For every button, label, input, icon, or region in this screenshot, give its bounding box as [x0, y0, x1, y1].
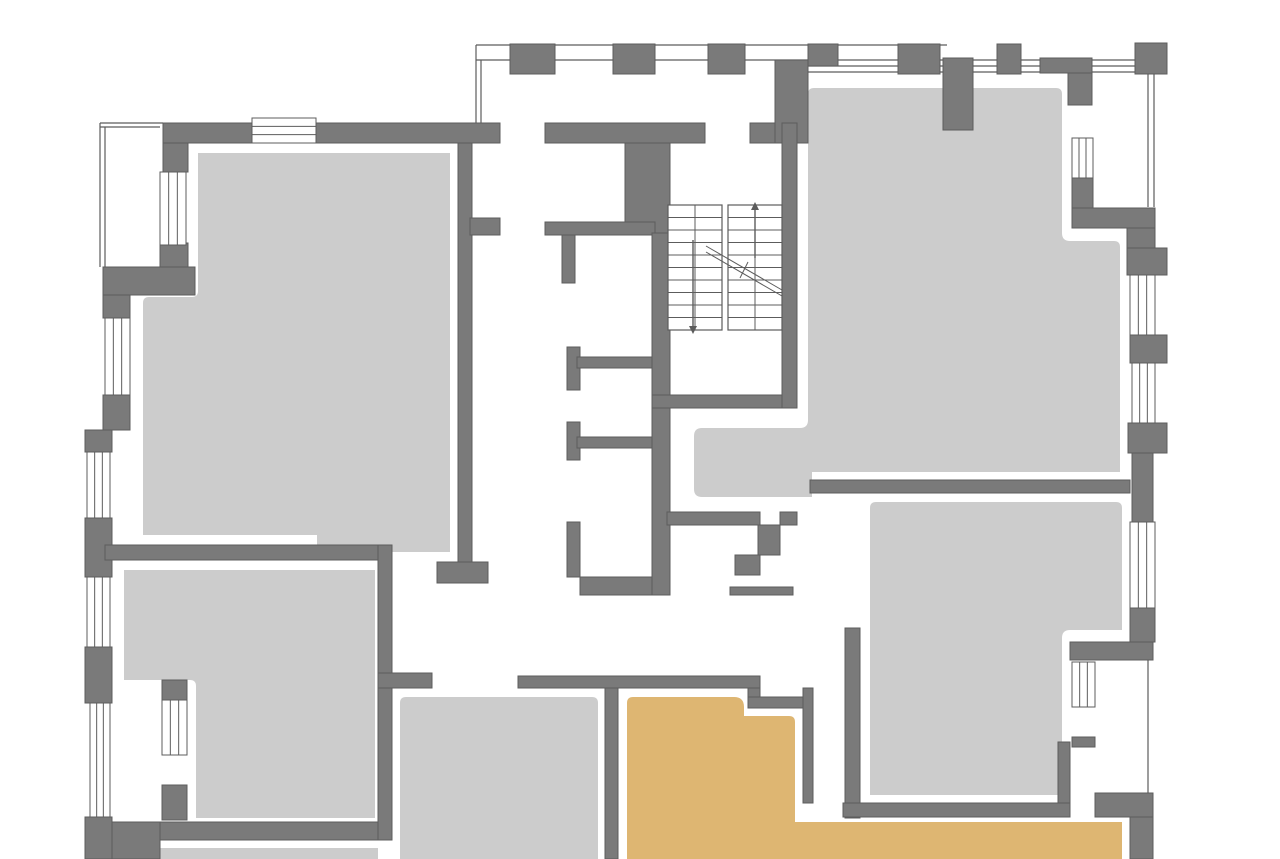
room-fill[interactable] [160, 848, 378, 859]
wall-segment [1095, 793, 1153, 817]
window-opening [252, 118, 316, 143]
wall-segment [1132, 453, 1153, 522]
wall-segment [103, 395, 130, 430]
wall-segment [667, 512, 760, 525]
wall-segment [1072, 737, 1095, 747]
window-opening [105, 318, 130, 395]
wall-segment [735, 555, 760, 575]
window [87, 452, 110, 518]
wall-segment [613, 44, 655, 74]
wall-segment [782, 123, 797, 408]
wall-segment [803, 688, 813, 803]
wall-segment [162, 680, 187, 700]
wall-segment [808, 44, 838, 66]
wall-segment [708, 44, 745, 74]
wall-segment [997, 44, 1021, 74]
wall-segment [162, 785, 187, 820]
wall-segment [85, 647, 112, 703]
wall-segment [1068, 73, 1092, 105]
window-opening [87, 577, 110, 647]
wall-segment [843, 803, 1070, 817]
wall-segment [1072, 208, 1155, 228]
wall-segment [1040, 58, 1092, 73]
wall-segment [378, 673, 432, 688]
wall-segment [103, 267, 195, 295]
floor-plan-svg [0, 0, 1280, 859]
wall-segment [625, 143, 670, 233]
wall-segment [160, 243, 188, 267]
wall-segment [1130, 817, 1153, 859]
wall-segment [577, 357, 655, 368]
wall-segment [545, 123, 705, 143]
window [1072, 662, 1095, 707]
window [1132, 363, 1155, 423]
wall-segment [1058, 742, 1070, 803]
window [1072, 138, 1093, 178]
window-opening [162, 700, 187, 755]
wall-segment [1128, 423, 1167, 453]
wall-segment [105, 545, 378, 560]
wall-segment [112, 822, 160, 859]
wall-segment [1130, 608, 1155, 642]
window-opening [1132, 363, 1155, 423]
wall-segment [103, 295, 130, 318]
window [87, 577, 110, 647]
wall-segment [730, 587, 793, 595]
wall-segment [470, 218, 500, 235]
wall-segment [652, 395, 797, 408]
wall-segment [85, 430, 112, 452]
wall-segment [1070, 642, 1153, 660]
wall-segment [458, 143, 472, 562]
window [1130, 522, 1155, 608]
window-opening [1072, 662, 1095, 707]
wall-segment [85, 817, 112, 859]
window [162, 700, 187, 755]
wall-segment [518, 676, 760, 688]
window [105, 318, 130, 395]
wall-segment [845, 628, 860, 818]
wall-segment [1135, 43, 1167, 74]
wall-segment [652, 233, 670, 595]
window-opening [87, 452, 110, 518]
wall-segment [898, 44, 940, 74]
window [160, 172, 186, 245]
window [252, 118, 316, 143]
wall-segment [567, 522, 580, 577]
floor-plan [0, 0, 1280, 859]
wall-segment [378, 545, 392, 840]
wall-segment [437, 562, 488, 583]
wall-segment [160, 822, 392, 840]
window-opening [1072, 138, 1093, 178]
window [90, 703, 110, 817]
room-fill[interactable] [400, 697, 598, 859]
wall-segment [577, 437, 652, 448]
wall-segment [510, 44, 555, 74]
wall-segment [163, 123, 500, 143]
wall-segment [758, 525, 780, 555]
wall-segment [545, 222, 655, 235]
wall-segment [562, 235, 575, 283]
wall-segment [1130, 335, 1167, 363]
wall-segment [163, 143, 188, 172]
wall-segment [943, 58, 973, 130]
wall-segment [1127, 248, 1167, 275]
window-opening [160, 172, 186, 245]
window-opening [1130, 275, 1155, 335]
window-opening [1130, 522, 1155, 608]
window-opening [90, 703, 110, 817]
wall-segment [605, 688, 618, 859]
window [1130, 275, 1155, 335]
wall-segment [1127, 228, 1155, 248]
wall-segment [810, 480, 1130, 493]
wall-segment [1072, 178, 1093, 208]
wall-segment [780, 512, 797, 525]
